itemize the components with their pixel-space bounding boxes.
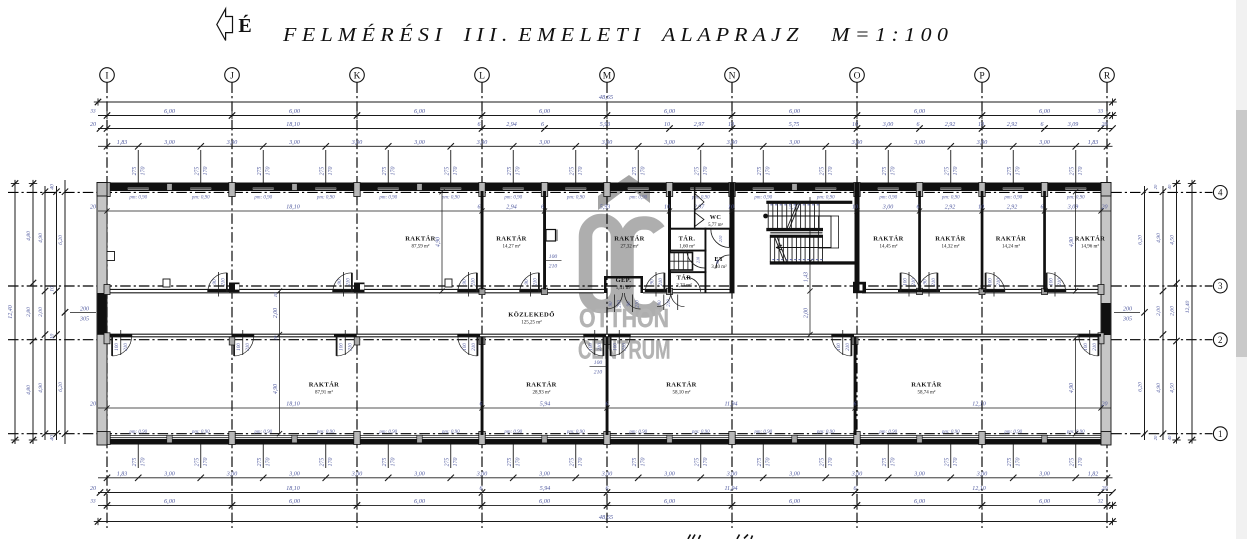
svg-text:170: 170 — [516, 167, 522, 176]
svg-text:2,92: 2,92 — [1007, 205, 1018, 211]
svg-text:10: 10 — [273, 292, 278, 297]
svg-text:4,80: 4,80 — [26, 231, 32, 241]
svg-text:48,65: 48,65 — [599, 514, 613, 521]
svg-text:90: 90 — [462, 279, 468, 285]
svg-text:6: 6 — [917, 205, 920, 211]
svg-text:14,96 m²: 14,96 m² — [1081, 244, 1099, 250]
svg-text:6,00: 6,00 — [414, 108, 426, 115]
svg-text:20: 20 — [1102, 122, 1108, 128]
svg-text:170: 170 — [266, 167, 272, 176]
svg-text:275: 275 — [820, 167, 826, 176]
svg-text:3,00: 3,00 — [1038, 471, 1050, 477]
svg-text:275: 275 — [882, 458, 888, 467]
svg-text:2,60: 2,60 — [1170, 306, 1176, 316]
svg-text:RAKTÁR: RAKTÁR — [1075, 235, 1106, 243]
svg-text:275: 275 — [132, 458, 138, 467]
svg-text:210: 210 — [533, 278, 539, 286]
svg-text:100: 100 — [836, 343, 842, 351]
svg-text:20: 20 — [1153, 435, 1158, 440]
svg-text:210: 210 — [911, 278, 917, 286]
svg-text:pm: 0,90: pm: 0,90 — [941, 430, 960, 435]
svg-text:170: 170 — [141, 167, 147, 176]
svg-text:pm: 0,90: pm: 0,90 — [441, 430, 460, 435]
svg-text:RAKTÁR: RAKTÁR — [873, 235, 904, 243]
svg-text:10: 10 — [273, 335, 278, 340]
svg-text:100: 100 — [339, 343, 345, 351]
svg-text:10: 10 — [50, 286, 56, 292]
svg-text:58,74 m²: 58,74 m² — [918, 390, 936, 396]
svg-text:1,43: 1,43 — [802, 272, 809, 282]
svg-text:275: 275 — [757, 458, 763, 467]
svg-text:58,10 m²: 58,10 m² — [673, 390, 691, 396]
svg-text:WC: WC — [710, 214, 721, 221]
svg-text:3,00: 3,00 — [163, 140, 175, 146]
svg-text:6,00: 6,00 — [289, 498, 301, 505]
svg-text:20: 20 — [90, 402, 96, 408]
svg-text:210: 210 — [621, 343, 627, 351]
svg-text:3,00: 3,00 — [851, 140, 863, 146]
svg-text:170: 170 — [266, 458, 272, 467]
svg-text:275: 275 — [570, 167, 576, 176]
svg-text:RAKTÁR: RAKTÁR — [666, 381, 697, 389]
svg-text:275: 275 — [507, 458, 513, 467]
svg-text:275: 275 — [945, 167, 951, 176]
svg-text:5,94: 5,94 — [540, 401, 551, 408]
svg-text:pm: 0,90: pm: 0,90 — [316, 195, 335, 200]
svg-text:275: 275 — [945, 458, 951, 467]
svg-text:L: L — [479, 71, 485, 81]
svg-text:275: 275 — [445, 458, 451, 467]
svg-text:ET: ET — [714, 256, 724, 263]
svg-text:100: 100 — [594, 360, 603, 366]
svg-text:10: 10 — [978, 205, 984, 211]
svg-text:210: 210 — [618, 300, 623, 308]
svg-text:6,00: 6,00 — [539, 498, 551, 505]
svg-text:4,90: 4,90 — [1156, 233, 1162, 243]
svg-text:100: 100 — [588, 343, 594, 351]
svg-text:5,93: 5,93 — [600, 205, 611, 211]
svg-text:170: 170 — [891, 458, 897, 467]
svg-text:10: 10 — [728, 205, 734, 211]
svg-text:6: 6 — [478, 205, 481, 211]
svg-text:pm: 0,90: pm: 0,90 — [378, 195, 397, 200]
svg-text:10: 10 — [50, 334, 56, 340]
svg-text:1,82: 1,82 — [1088, 471, 1099, 477]
svg-text:32: 32 — [1098, 499, 1104, 505]
svg-text:14,45 m²: 14,45 m² — [880, 244, 898, 250]
svg-text:6,00: 6,00 — [539, 108, 551, 115]
svg-text:3,00: 3,00 — [882, 122, 894, 128]
svg-text:6,00: 6,00 — [914, 498, 926, 505]
svg-text:3,00: 3,00 — [913, 471, 925, 477]
svg-text:170: 170 — [391, 458, 397, 467]
svg-text:3,00: 3,00 — [288, 471, 300, 477]
svg-text:210: 210 — [718, 235, 723, 242]
svg-text:90: 90 — [212, 279, 218, 285]
svg-text:4,90: 4,90 — [38, 383, 44, 393]
svg-text:6: 6 — [541, 205, 544, 211]
svg-text:275: 275 — [132, 167, 138, 176]
svg-text:3,00: 3,00 — [726, 471, 738, 477]
svg-text:KÖZLEKEDŐ: KÖZLEKEDŐ — [508, 311, 554, 319]
svg-text:170: 170 — [1016, 458, 1022, 467]
svg-text:170: 170 — [891, 167, 897, 176]
svg-text:6: 6 — [854, 486, 857, 492]
svg-text:275: 275 — [570, 458, 576, 467]
svg-text:170: 170 — [953, 458, 959, 467]
svg-text:12,10: 12,10 — [972, 402, 986, 408]
svg-text:275: 275 — [195, 167, 201, 176]
svg-text:5,94: 5,94 — [540, 485, 551, 492]
svg-text:1,60 m²: 1,60 m² — [679, 244, 695, 250]
svg-text:2,92: 2,92 — [945, 122, 956, 128]
svg-text:275: 275 — [820, 458, 826, 467]
svg-text:3,00: 3,00 — [976, 471, 988, 477]
svg-text:20: 20 — [1102, 205, 1108, 211]
svg-text:K: K — [354, 71, 361, 81]
svg-text:4,90: 4,90 — [1156, 383, 1162, 393]
svg-text:6,20: 6,20 — [58, 382, 64, 392]
svg-text:14,32 m²: 14,32 m² — [942, 244, 960, 250]
svg-text:3,00: 3,00 — [226, 140, 238, 146]
svg-text:210: 210 — [471, 343, 477, 351]
svg-text:5,93: 5,93 — [600, 122, 611, 128]
svg-text:3,00: 3,00 — [351, 471, 363, 477]
svg-text:6,20: 6,20 — [58, 235, 64, 245]
svg-text:170: 170 — [828, 458, 834, 467]
svg-text:3,00: 3,00 — [413, 471, 425, 477]
svg-text:275: 275 — [195, 458, 201, 467]
svg-text:170: 170 — [1078, 458, 1084, 467]
svg-text:275: 275 — [445, 167, 451, 176]
svg-text:3,00: 3,00 — [726, 140, 738, 146]
svg-text:3,00: 3,00 — [1038, 140, 1050, 146]
svg-text:2,92: 2,92 — [1007, 122, 1018, 128]
svg-text:2,00: 2,00 — [1156, 306, 1162, 316]
svg-text:pm: 0,90: pm: 0,90 — [316, 430, 335, 435]
svg-text:210: 210 — [549, 264, 558, 270]
svg-text:3,00: 3,00 — [851, 471, 863, 477]
svg-text:pm: 0,90: pm: 0,90 — [941, 195, 960, 200]
svg-text:275: 275 — [507, 167, 513, 176]
svg-text:RAKTÁR: RAKTÁR — [614, 235, 645, 243]
svg-text:pm: 0,90: pm: 0,90 — [566, 195, 585, 200]
svg-text:210: 210 — [471, 278, 477, 286]
svg-text:210: 210 — [658, 278, 664, 286]
svg-text:pm: 0,90: pm: 0,90 — [816, 430, 835, 435]
svg-text:275: 275 — [257, 458, 263, 467]
svg-text:275: 275 — [382, 458, 388, 467]
svg-text:1,41 m²: 1,41 m² — [616, 285, 632, 291]
svg-text:3,00: 3,00 — [788, 471, 800, 477]
svg-text:RAKTÁR: RAKTÁR — [496, 235, 527, 243]
svg-text:170: 170 — [578, 458, 584, 467]
svg-text:4,80: 4,80 — [26, 385, 32, 395]
svg-text:305: 305 — [79, 317, 89, 323]
svg-text:100: 100 — [114, 343, 120, 351]
svg-text:170: 170 — [328, 458, 334, 467]
svg-text:pm: 0,90: pm: 0,90 — [691, 195, 710, 200]
svg-text:3,00: 3,00 — [913, 140, 925, 146]
svg-text:3,00: 3,00 — [976, 140, 988, 146]
svg-text:3,00: 3,00 — [413, 140, 425, 146]
svg-text:2,94: 2,94 — [506, 204, 517, 211]
svg-text:10: 10 — [664, 205, 670, 211]
svg-text:pm: 0,90: pm: 0,90 — [128, 430, 147, 435]
svg-text:RAKTÁR: RAKTÁR — [911, 381, 942, 389]
svg-text:20: 20 — [1153, 184, 1158, 189]
svg-text:170: 170 — [516, 458, 522, 467]
svg-text:10: 10 — [664, 122, 670, 128]
svg-text:N: N — [729, 71, 736, 81]
svg-text:170: 170 — [203, 458, 209, 467]
svg-text:275: 275 — [1007, 458, 1013, 467]
svg-text:48,65: 48,65 — [599, 94, 613, 101]
svg-text:275: 275 — [695, 167, 701, 176]
svg-text:pm: 0,90: pm: 0,90 — [816, 195, 835, 200]
svg-text:3,09: 3,09 — [1067, 205, 1079, 211]
svg-text:6: 6 — [854, 402, 857, 408]
svg-text:pm: 0,90: pm: 0,90 — [753, 195, 772, 200]
svg-text:275: 275 — [882, 167, 888, 176]
svg-text:210: 210 — [1092, 343, 1098, 351]
svg-text:RAKTÁR: RAKTÁR — [935, 235, 966, 243]
svg-text:210: 210 — [347, 343, 353, 351]
svg-text:pm: 0,90: pm: 0,90 — [503, 195, 522, 200]
svg-text:100: 100 — [613, 343, 619, 351]
svg-text:TÁR.: TÁR. — [679, 235, 696, 243]
svg-text:33: 33 — [90, 499, 96, 505]
svg-text:12,10: 12,10 — [972, 486, 986, 492]
svg-text:pm: 0,90: pm: 0,90 — [503, 430, 522, 435]
svg-text:4,90: 4,90 — [1068, 383, 1075, 393]
svg-text:2,97: 2,97 — [694, 122, 706, 128]
svg-text:3,00: 3,00 — [882, 205, 894, 211]
svg-text:6: 6 — [541, 122, 544, 128]
svg-text:170: 170 — [328, 167, 334, 176]
svg-text:10: 10 — [852, 205, 858, 211]
svg-text:6: 6 — [1041, 122, 1044, 128]
svg-text:18,10: 18,10 — [286, 402, 300, 408]
svg-text:6,20: 6,20 — [1138, 235, 1144, 245]
svg-text:27,32 m²: 27,32 m² — [621, 244, 639, 250]
svg-text:100: 100 — [1083, 343, 1089, 351]
svg-text:6,00: 6,00 — [664, 108, 676, 115]
svg-text:6,00: 6,00 — [789, 108, 801, 115]
svg-text:3,00: 3,00 — [663, 140, 675, 146]
svg-text:275: 275 — [695, 458, 701, 467]
svg-text:87,59 m²: 87,59 m² — [412, 244, 430, 250]
svg-text:3,00: 3,00 — [163, 471, 175, 477]
svg-text:pm: 0,90: pm: 0,90 — [378, 430, 397, 435]
svg-text:6,00: 6,00 — [164, 498, 176, 505]
svg-text:6: 6 — [606, 402, 609, 408]
svg-text:10: 10 — [852, 122, 858, 128]
svg-text:20: 20 — [90, 486, 96, 492]
svg-text:170: 170 — [703, 458, 709, 467]
svg-text:90: 90 — [337, 279, 343, 285]
svg-text:18,10: 18,10 — [286, 122, 300, 128]
svg-text:20: 20 — [1102, 402, 1108, 408]
svg-text:12,40: 12,40 — [1185, 301, 1191, 314]
svg-text:100: 100 — [1048, 278, 1054, 286]
svg-text:170: 170 — [453, 458, 459, 467]
svg-text:10: 10 — [978, 122, 984, 128]
svg-text:R: R — [1104, 71, 1111, 81]
svg-text:1: 1 — [1218, 429, 1223, 439]
svg-text:4,90: 4,90 — [38, 233, 44, 243]
svg-text:275: 275 — [1007, 167, 1013, 176]
svg-text:GÉP.: GÉP. — [616, 276, 632, 284]
svg-text:F E L M É R É S I I I I . E M: F E L M É R É S I I I I . E M E L E T I … — [282, 24, 948, 46]
svg-text:2,80: 2,80 — [26, 307, 32, 317]
svg-text:O: O — [854, 71, 861, 81]
svg-text:90: 90 — [609, 301, 614, 307]
svg-text:18,10: 18,10 — [286, 486, 300, 492]
svg-text:275: 275 — [632, 167, 638, 176]
svg-text:RAKTÁR: RAKTÁR — [405, 235, 436, 243]
svg-text:90: 90 — [524, 279, 530, 285]
svg-text:40: 40 — [1167, 184, 1172, 189]
svg-text:TÁR: TÁR — [677, 274, 692, 282]
svg-text:pm: 0,90: pm: 0,90 — [691, 430, 710, 435]
svg-text:275: 275 — [257, 167, 263, 176]
svg-text:6,20: 6,20 — [1138, 382, 1144, 392]
svg-text:90: 90 — [627, 301, 632, 307]
svg-text:pm: 0,90: pm: 0,90 — [1003, 195, 1022, 200]
svg-text:170: 170 — [766, 167, 772, 176]
svg-text:275: 275 — [320, 458, 326, 467]
svg-text:RAKTÁR: RAKTÁR — [526, 381, 557, 389]
svg-text:6: 6 — [478, 122, 481, 128]
svg-text:5,77 m²: 5,77 m² — [708, 222, 723, 228]
svg-text:90: 90 — [658, 300, 663, 306]
svg-text:40: 40 — [1167, 435, 1172, 440]
svg-text:2,00: 2,00 — [273, 308, 279, 318]
svg-text:170: 170 — [703, 167, 709, 176]
svg-text:11,94: 11,94 — [724, 401, 737, 408]
svg-text:6: 6 — [606, 486, 609, 492]
svg-text:210: 210 — [845, 343, 851, 351]
svg-text:4,90: 4,90 — [272, 384, 279, 394]
svg-text:J: J — [230, 71, 234, 81]
svg-text:40: 40 — [50, 435, 56, 441]
svg-text:M: M — [603, 71, 612, 81]
svg-text:275: 275 — [757, 167, 763, 176]
svg-text:2,23 m²: 2,23 m² — [676, 283, 692, 289]
svg-text:170: 170 — [578, 167, 584, 176]
svg-text:20: 20 — [90, 122, 96, 128]
svg-text:170: 170 — [953, 167, 959, 176]
svg-text:100: 100 — [549, 254, 558, 260]
svg-text:275: 275 — [382, 167, 388, 176]
svg-text:6: 6 — [917, 122, 920, 128]
svg-text:6,00: 6,00 — [664, 498, 676, 505]
svg-text:1,83: 1,83 — [1088, 140, 1099, 146]
svg-text:2,94: 2,94 — [506, 121, 517, 128]
svg-text:40: 40 — [50, 184, 56, 190]
svg-text:100: 100 — [902, 278, 908, 286]
svg-text:1,83: 1,83 — [117, 140, 128, 146]
svg-text:pm: 0,90: pm: 0,90 — [753, 430, 772, 435]
svg-text:3,00: 3,00 — [538, 140, 550, 146]
svg-text:33: 33 — [1098, 109, 1104, 115]
svg-text:10: 10 — [728, 122, 734, 128]
svg-text:210: 210 — [996, 278, 1002, 286]
svg-text:pm: 0,90: pm: 0,90 — [441, 195, 460, 200]
svg-text:170: 170 — [391, 167, 397, 176]
svg-text:2: 2 — [1218, 335, 1223, 345]
svg-text:90: 90 — [649, 279, 655, 285]
svg-text:6,00: 6,00 — [164, 108, 176, 115]
svg-text:3,00: 3,00 — [476, 471, 488, 477]
svg-text:170: 170 — [641, 458, 647, 467]
svg-text:5,75: 5,75 — [789, 122, 800, 128]
svg-text:210: 210 — [667, 299, 672, 307]
svg-text:275: 275 — [320, 167, 326, 176]
svg-text:OTTHON: OTTHON — [579, 303, 669, 333]
svg-text:6,00: 6,00 — [289, 108, 301, 115]
svg-text:100: 100 — [987, 278, 993, 286]
svg-text:4,50: 4,50 — [1170, 235, 1176, 245]
svg-text:170: 170 — [1016, 167, 1022, 176]
svg-text:3,00: 3,00 — [788, 140, 800, 146]
svg-text:6,00: 6,00 — [789, 498, 801, 505]
svg-text:pm: 0,90: pm: 0,90 — [191, 195, 210, 200]
svg-text:210: 210 — [636, 300, 641, 308]
svg-text:170: 170 — [141, 458, 147, 467]
svg-text:1,83: 1,83 — [117, 471, 128, 477]
svg-text:6: 6 — [480, 486, 483, 492]
svg-text:2,92: 2,92 — [945, 205, 956, 211]
svg-text:pm: 0,90: pm: 0,90 — [191, 430, 210, 435]
svg-text:275: 275 — [1070, 167, 1076, 176]
svg-text:3,00: 3,00 — [663, 471, 675, 477]
svg-text:170: 170 — [453, 167, 459, 176]
svg-text:18,10: 18,10 — [286, 205, 300, 211]
svg-text:pm: 0,90: pm: 0,90 — [628, 195, 647, 200]
svg-text:28,93 m²: 28,93 m² — [533, 390, 551, 396]
svg-text:4: 4 — [1218, 188, 1223, 198]
svg-text:pm: 0,90: pm: 0,90 — [253, 195, 272, 200]
svg-text:pm: 0,90: pm: 0,90 — [1003, 430, 1022, 435]
svg-text:3,00: 3,00 — [538, 471, 550, 477]
svg-text:100: 100 — [462, 343, 468, 351]
svg-text:210: 210 — [696, 256, 701, 263]
svg-text:210: 210 — [1057, 278, 1063, 286]
svg-text:210: 210 — [123, 343, 129, 351]
svg-text:3,09: 3,09 — [1067, 122, 1079, 128]
svg-text:2,00: 2,00 — [803, 308, 809, 318]
svg-text:3,40 m²: 3,40 m² — [711, 264, 727, 270]
svg-text:4,50: 4,50 — [1170, 383, 1176, 393]
svg-text:2,00: 2,00 — [38, 307, 44, 317]
svg-text:6,00: 6,00 — [914, 108, 926, 115]
svg-text:210: 210 — [346, 278, 352, 286]
svg-text:170: 170 — [828, 167, 834, 176]
svg-text:170: 170 — [641, 167, 647, 176]
svg-text:14,27 m²: 14,27 m² — [503, 244, 521, 250]
svg-text:305: 305 — [1122, 317, 1132, 323]
svg-text:pm: 0,90: pm: 0,90 — [253, 430, 272, 435]
svg-text:33: 33 — [90, 109, 96, 115]
svg-text:20: 20 — [1102, 486, 1108, 492]
svg-text:3,00: 3,00 — [226, 471, 238, 477]
svg-text:P: P — [979, 71, 984, 81]
svg-text:6,00: 6,00 — [414, 498, 426, 505]
svg-text:6: 6 — [1041, 205, 1044, 211]
svg-text:210: 210 — [931, 278, 937, 286]
